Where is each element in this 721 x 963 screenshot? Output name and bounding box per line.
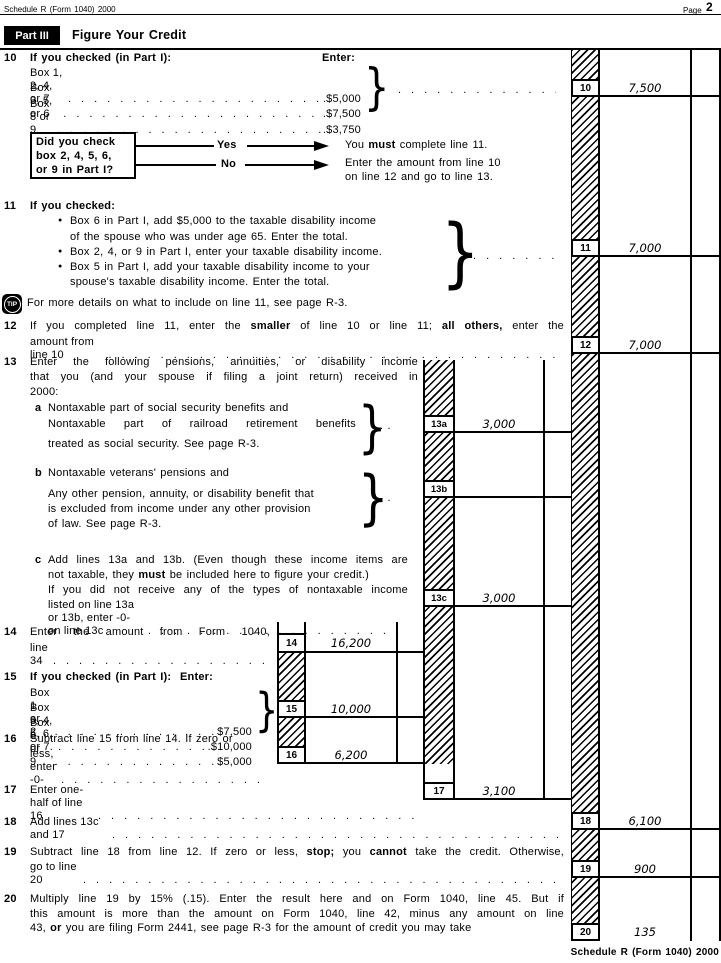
line-11-head: If you checked: (30, 200, 115, 213)
did-you-check-box: Did you check box 2, 4, 5, 6, or 9 in Pa… (30, 132, 136, 179)
line-14-text2: line 34 ................................… (30, 642, 264, 668)
line-11-bullet2: Box 2, 4, or 9 in Part I, enter your tax… (70, 246, 382, 259)
part-iii-badge: Part III (4, 26, 60, 45)
line-10-head: If you checked (in Part I): (30, 52, 171, 65)
line-13c-letter: c (35, 554, 41, 567)
col-line (598, 50, 600, 941)
line-19-number: 19 (4, 846, 17, 859)
text-bold: must (138, 569, 165, 581)
text: complete line 11. (396, 139, 488, 151)
yes-arrow-line (136, 145, 214, 147)
part-iii-rule (0, 48, 721, 50)
line-19-amount[interactable]: 900 (600, 862, 690, 876)
line-16-text2: less, enter -0- ........................… (30, 748, 264, 787)
bullet-icon: ● (58, 217, 62, 224)
line-13-text3: 2000: (30, 386, 59, 399)
line-15-head: If you checked (in Part I): (30, 671, 171, 684)
tip-icon: TIP (2, 294, 22, 314)
text: not taxable, they (48, 569, 138, 581)
tip-icon-label: TIP (4, 296, 21, 313)
line-16-number: 16 (4, 733, 17, 746)
line-15-enter: Enter: (180, 671, 213, 684)
schedule-r-page2: Schedule R (Form 1040) 2000 Page 2 Part … (0, 0, 721, 963)
line-11-bullet1b: of the spouse who was under age 65. Ente… (70, 231, 348, 244)
line-13a-box: 13a (423, 415, 455, 433)
dot-leader: ........................................… (398, 84, 556, 98)
text: you are filing Form 2441, see page R-3 f… (62, 922, 472, 934)
text: go to line 20 (30, 861, 78, 887)
text: Subtract line 18 from line 12. If zero o… (30, 846, 307, 858)
line-17-amount[interactable]: 3,100 (455, 784, 543, 798)
line-13b-text1: Nontaxable veterans' pensions and (48, 467, 229, 480)
line-13b-letter: b (35, 467, 42, 480)
line-15-amount[interactable]: 10,000 (306, 702, 396, 716)
bullet-icon: ● (58, 248, 62, 255)
bullet-icon: ● (58, 263, 62, 270)
line-19-box: 19 (571, 860, 600, 878)
line-13c-text2: not taxable, they must be included here … (48, 569, 369, 582)
hatch-strip-right (571, 50, 600, 941)
text: you (334, 846, 369, 858)
line-17-box: 17 (423, 782, 455, 800)
line-10-amount[interactable]: 7,500 (600, 81, 690, 95)
no-arrow-line (245, 164, 314, 166)
line-19-text1: Subtract line 18 from line 12. If zero o… (30, 846, 564, 859)
line-13c-amount[interactable]: 3,000 (455, 591, 543, 605)
line-11-number: 11 (4, 200, 16, 213)
text: take the credit. Otherwise, (407, 846, 564, 858)
line-20-text2: this amount is more than the amount on F… (30, 908, 564, 921)
line-13-number: 13 (4, 356, 17, 369)
line-10-enter: Enter: (322, 52, 355, 65)
line-13b-text2: Any other pension, annuity, or disabilit… (48, 488, 314, 501)
line-14-number: 14 (4, 626, 17, 639)
line-17-number: 17 (4, 784, 17, 797)
gap (425, 764, 453, 784)
line-20-box: 20 (571, 923, 600, 941)
cents-divider (396, 622, 398, 764)
no-arrow-line (136, 164, 216, 166)
page-word: Page (683, 4, 702, 17)
footer-form-id: Schedule R (Form 1040) 2000 (519, 946, 719, 959)
line-13b-text3: is excluded from income under any other … (48, 503, 311, 516)
text-bold: all others, (442, 320, 503, 332)
dot-leader: . . (380, 420, 391, 433)
line-13-text1: Enter the following pensions, annuities,… (30, 356, 418, 369)
line-13-text2: that you (and your spouse if filing a jo… (30, 371, 418, 384)
part-iii-title: Figure Your Credit (72, 29, 186, 42)
line-12-box: 12 (571, 336, 600, 354)
header-rule (0, 14, 721, 15)
line-13c-text3: If you did not receive any of the types … (48, 584, 408, 597)
row-amount: .$3,750 (323, 124, 361, 137)
line-16-text1: Subtract line 15 from line 14. If zero o… (30, 733, 233, 746)
brace-line-15: } (255, 686, 278, 734)
line-16-box: 16 (277, 746, 306, 764)
hatch-strip-15 (277, 718, 306, 746)
line-12-text1: If you completed line 11, enter the smal… (30, 320, 564, 333)
text: Add lines 13c and 17 (30, 816, 107, 842)
line-16-amount[interactable]: 6,200 (306, 748, 396, 762)
line-13a-text3: treated as social security. See page R-3… (48, 438, 260, 451)
text-bold: must (368, 139, 395, 151)
yes-arrowhead-icon (314, 141, 329, 151)
line-15-number: 15 (4, 671, 17, 684)
line-13b-text4: of law. See page R-3. (48, 518, 161, 531)
yes-result-text: You must complete line 11. (345, 139, 488, 152)
line-18-box: 18 (571, 812, 600, 830)
text: 43, (30, 922, 50, 934)
text: line 34 (30, 642, 48, 668)
text-bold: cannot (370, 846, 407, 858)
text: If you completed line 11, enter the (30, 320, 251, 332)
line-20-text1: Multiply line 19 by 15% (.15). Enter the… (30, 893, 564, 906)
text-bold: stop; (307, 846, 335, 858)
no-result-line1: Enter the amount from line 10 (345, 157, 501, 170)
dot-leader: ........................................… (107, 829, 564, 842)
line-11-amount[interactable]: 7,000 (600, 241, 690, 255)
no-result-line2: on line 12 and go to line 13. (345, 171, 493, 184)
dot-leader: ........................................… (78, 874, 564, 887)
no-arrowhead-icon (314, 160, 329, 170)
line-15-box: 15 (277, 700, 306, 718)
line-20-amount[interactable]: 135 (600, 925, 690, 939)
dot-leader: . . (380, 492, 391, 505)
line-13a-text1: Nontaxable part of social security benef… (48, 402, 288, 415)
line-18-amount[interactable]: 6,100 (600, 814, 690, 828)
line-14-text1: Enter the amount from Form 1040, (30, 626, 270, 639)
line-19-text2: go to line 20 ..........................… (30, 861, 564, 887)
page-number: 2 (706, 1, 713, 14)
line-11-bullet3b: spouse's taxable disability income. Ente… (70, 276, 329, 289)
flow-question-line: or 9 in Part I? (36, 163, 134, 177)
line-12-amount[interactable]: 7,000 (600, 338, 690, 352)
text-bold: smaller (251, 320, 291, 332)
line-13a-letter: a (35, 402, 41, 415)
line-14-amount[interactable]: 16,200 (306, 636, 396, 650)
brace-line-10: } (364, 61, 389, 113)
line-10-number: 10 (4, 52, 17, 65)
line-18-number: 18 (4, 816, 17, 829)
text: You (345, 139, 368, 151)
yes-label: Yes (217, 139, 237, 152)
line-12-number: 12 (4, 320, 17, 333)
line-11-bullet3a: Box 5 in Part I, add your taxable disabi… (70, 261, 370, 274)
line-10-box: 10 (571, 79, 600, 97)
no-label: No (221, 158, 236, 171)
line-11-box: 11 (571, 239, 600, 257)
dot-leader: ........................................… (460, 250, 554, 264)
yes-arrow-line (247, 145, 314, 147)
flow-question-line: Did you check (36, 135, 134, 149)
line-13c-box: 13c (423, 589, 455, 607)
text: of line 10 or line 11; (290, 320, 441, 332)
hatch-strip-14 (277, 653, 306, 700)
col-line (571, 50, 572, 941)
text: less, enter -0- (30, 748, 56, 787)
text-bold: or (50, 922, 61, 934)
line-18-text: Add lines 13c and 17 ...................… (30, 816, 564, 842)
line-13c-text1: Add lines 13a and 13b. (Even though thes… (48, 554, 408, 567)
line-13a-text2: Nontaxable part of railroad retirement b… (48, 418, 356, 431)
text: enter the (503, 320, 564, 332)
line-20-number: 20 (4, 893, 17, 906)
line-13a-amount[interactable]: 3,000 (455, 417, 543, 431)
cents-divider (690, 50, 692, 941)
flow-question-line: box 2, 4, 5, 6, (36, 149, 134, 163)
line-13b-box: 13b (423, 480, 455, 498)
line-11-bullet1a: Box 6 in Part I, add $5,000 to the taxab… (70, 215, 376, 228)
cents-divider (543, 360, 545, 800)
dot-leader: ........................................… (48, 655, 264, 668)
line-20-text3: 43, or you are filing Form 2441, see pag… (30, 922, 471, 935)
text: be included here to figure your credit.) (165, 569, 369, 581)
tip-text: For more details on what to include on l… (27, 297, 348, 310)
